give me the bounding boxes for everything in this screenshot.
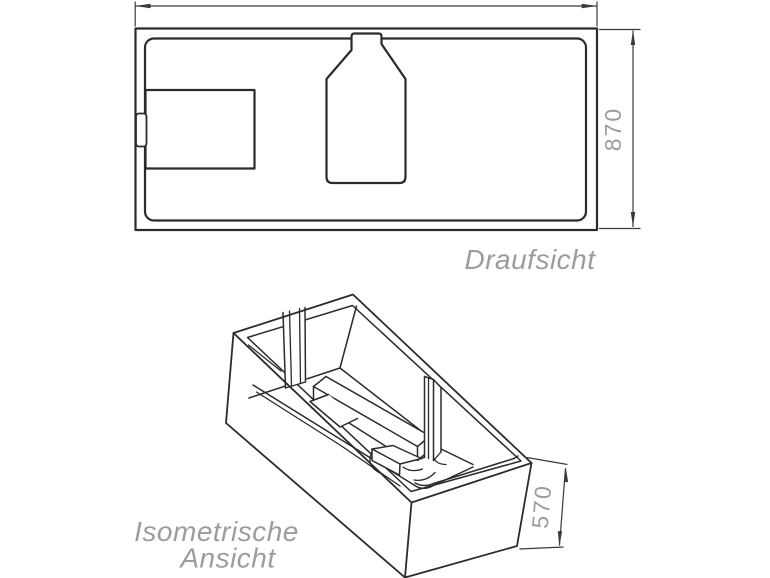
- arrowhead-up-icon: [631, 30, 635, 45]
- dimension-870-value: 870: [600, 107, 626, 151]
- top-view-side-recess: [146, 90, 255, 169]
- dimension-570-value: 570: [527, 483, 557, 529]
- top-width-dimension: [135, 2, 597, 27]
- bathtub-carrier-drawing-svg: 870 Draufsicht: [0, 0, 770, 578]
- height-dimension-870: 870: [599, 30, 641, 229]
- arrowhead-down-icon: [631, 212, 635, 227]
- arrowhead-left-icon: [135, 4, 150, 8]
- technical-drawing-page: 870 Draufsicht: [0, 0, 770, 578]
- isometric-view: 570 Isometrische Ansicht: [134, 295, 568, 578]
- top-view-drain-recess-outline: [327, 34, 406, 184]
- label-ansicht: Ansicht: [178, 543, 276, 574]
- iso-wall-slot: [283, 307, 307, 389]
- top-view: 870 Draufsicht: [135, 2, 640, 276]
- top-view-wall-notch: [136, 114, 147, 147]
- label-draufsicht: Draufsicht: [464, 244, 596, 275]
- arrowhead-right-icon: [582, 4, 597, 8]
